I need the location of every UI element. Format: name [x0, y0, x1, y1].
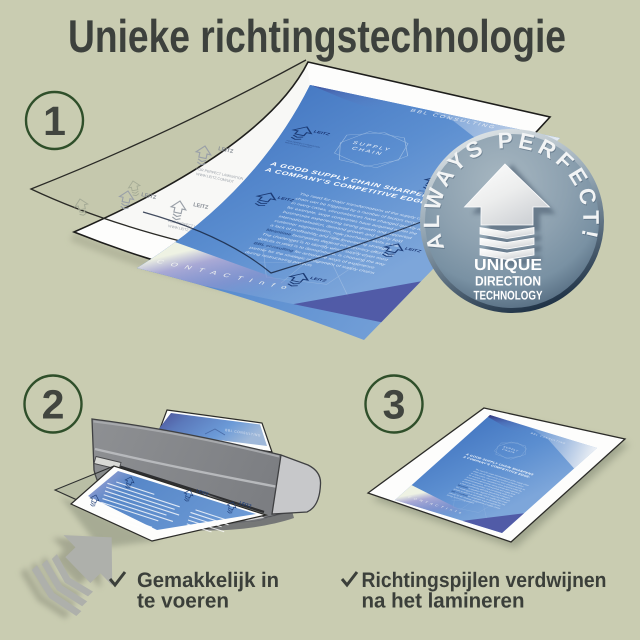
- svg-text:1: 1: [43, 98, 66, 144]
- svg-text:UNIQUE: UNIQUE: [474, 257, 542, 274]
- svg-text:2: 2: [42, 382, 65, 428]
- svg-text:3: 3: [383, 382, 406, 428]
- svg-text:Unieke richtingstechnologie: Unieke richtingstechnologie: [68, 10, 566, 62]
- svg-text:TECHNOLOGY: TECHNOLOGY: [474, 289, 544, 303]
- svg-text:na het lamineren: na het lamineren: [362, 590, 525, 613]
- svg-text:DIRECTION: DIRECTION: [475, 274, 541, 289]
- svg-text:te voeren: te voeren: [137, 590, 229, 613]
